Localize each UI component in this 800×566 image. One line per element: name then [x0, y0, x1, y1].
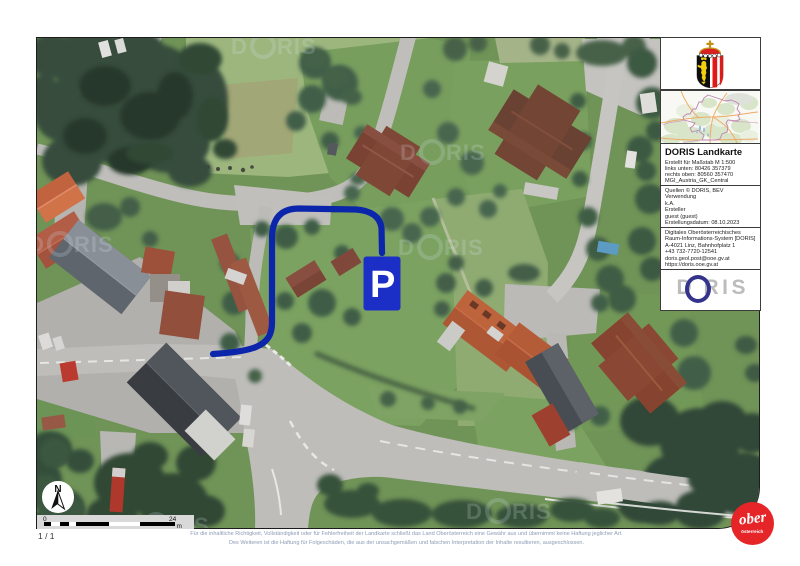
svg-text:P: P	[370, 264, 395, 306]
svg-text:D: D	[231, 38, 248, 59]
svg-text:RIS: RIS	[277, 38, 317, 59]
svg-text:RIS: RIS	[446, 140, 486, 165]
svg-text:RIS: RIS	[444, 235, 484, 260]
svg-text:D: D	[37, 232, 45, 257]
svg-text:D: D	[466, 499, 483, 524]
svg-text:D: D	[398, 235, 415, 260]
svg-text:RIS: RIS	[512, 499, 552, 524]
svg-text:D: D	[400, 140, 417, 165]
svg-text:RIS: RIS	[74, 232, 114, 257]
